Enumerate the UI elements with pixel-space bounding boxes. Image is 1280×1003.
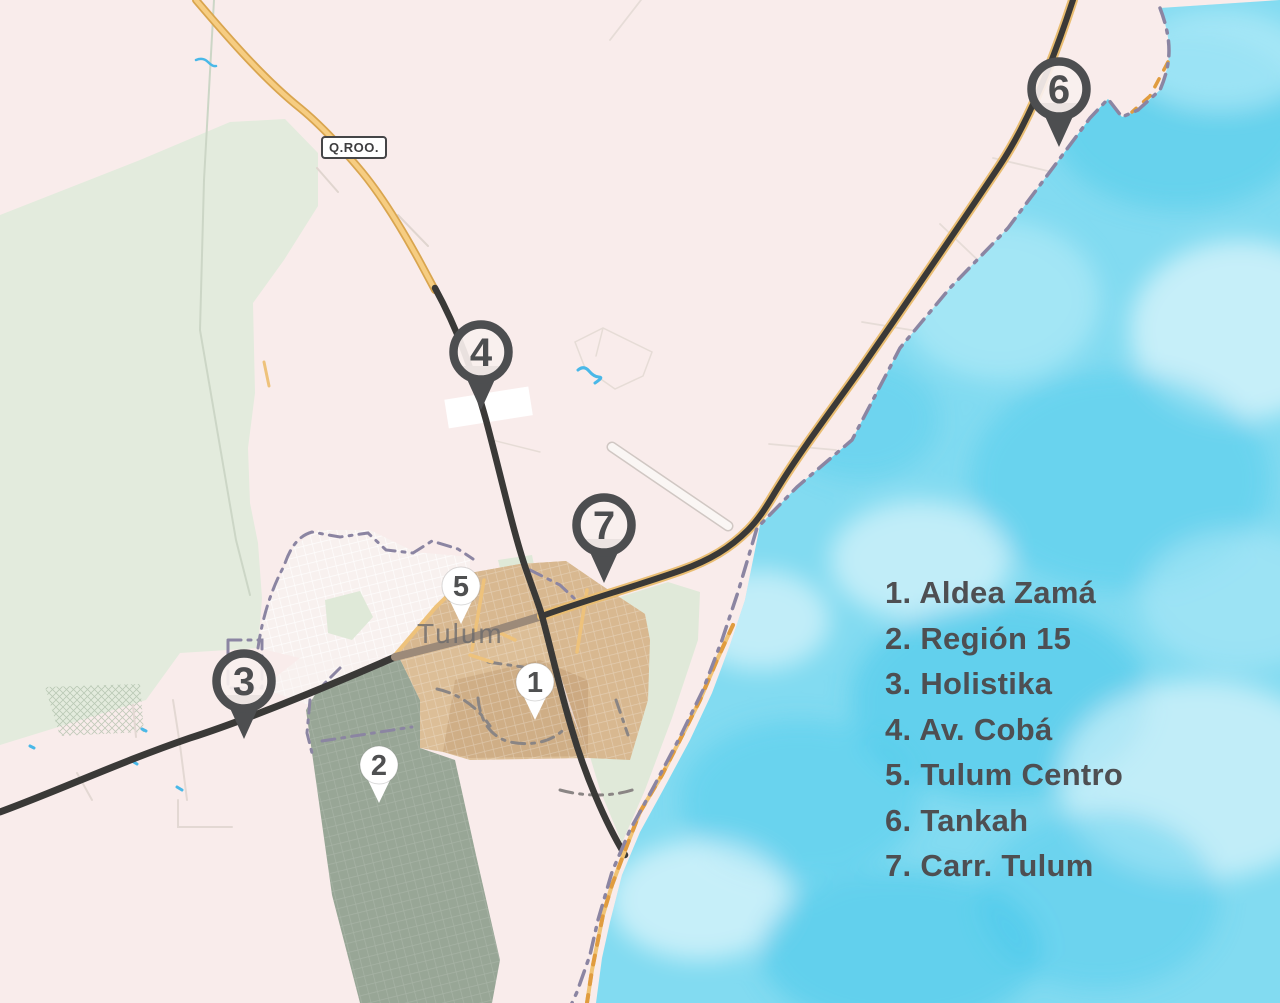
- svg-text:3: 3: [233, 660, 255, 704]
- legend-item-4: 4. Av. Cobá: [885, 707, 1123, 753]
- legend-item-2: 2. Región 15: [885, 616, 1123, 662]
- svg-text:7: 7: [593, 504, 615, 548]
- legend-item-5: 5. Tulum Centro: [885, 752, 1123, 798]
- legend-item-7: 7. Carr. Tulum: [885, 843, 1123, 889]
- svg-text:6: 6: [1048, 68, 1070, 112]
- svg-text:4: 4: [470, 331, 493, 375]
- region-badge: Q.ROO.: [321, 136, 387, 159]
- svg-text:5: 5: [453, 571, 469, 603]
- tulum-map: 1234567 Q.ROO. Tulum 1. Aldea Zamá2. Reg…: [0, 0, 1280, 1003]
- legend-item-6: 6. Tankah: [885, 798, 1123, 844]
- legend-item-3: 3. Holistika: [885, 661, 1123, 707]
- svg-text:1: 1: [527, 667, 543, 699]
- legend-list: 1. Aldea Zamá2. Región 153. Holistika4. …: [885, 570, 1123, 889]
- campground-hatch: [45, 684, 144, 736]
- svg-text:2: 2: [371, 750, 387, 782]
- legend-item-1: 1. Aldea Zamá: [885, 570, 1123, 616]
- city-label: Tulum: [417, 618, 504, 650]
